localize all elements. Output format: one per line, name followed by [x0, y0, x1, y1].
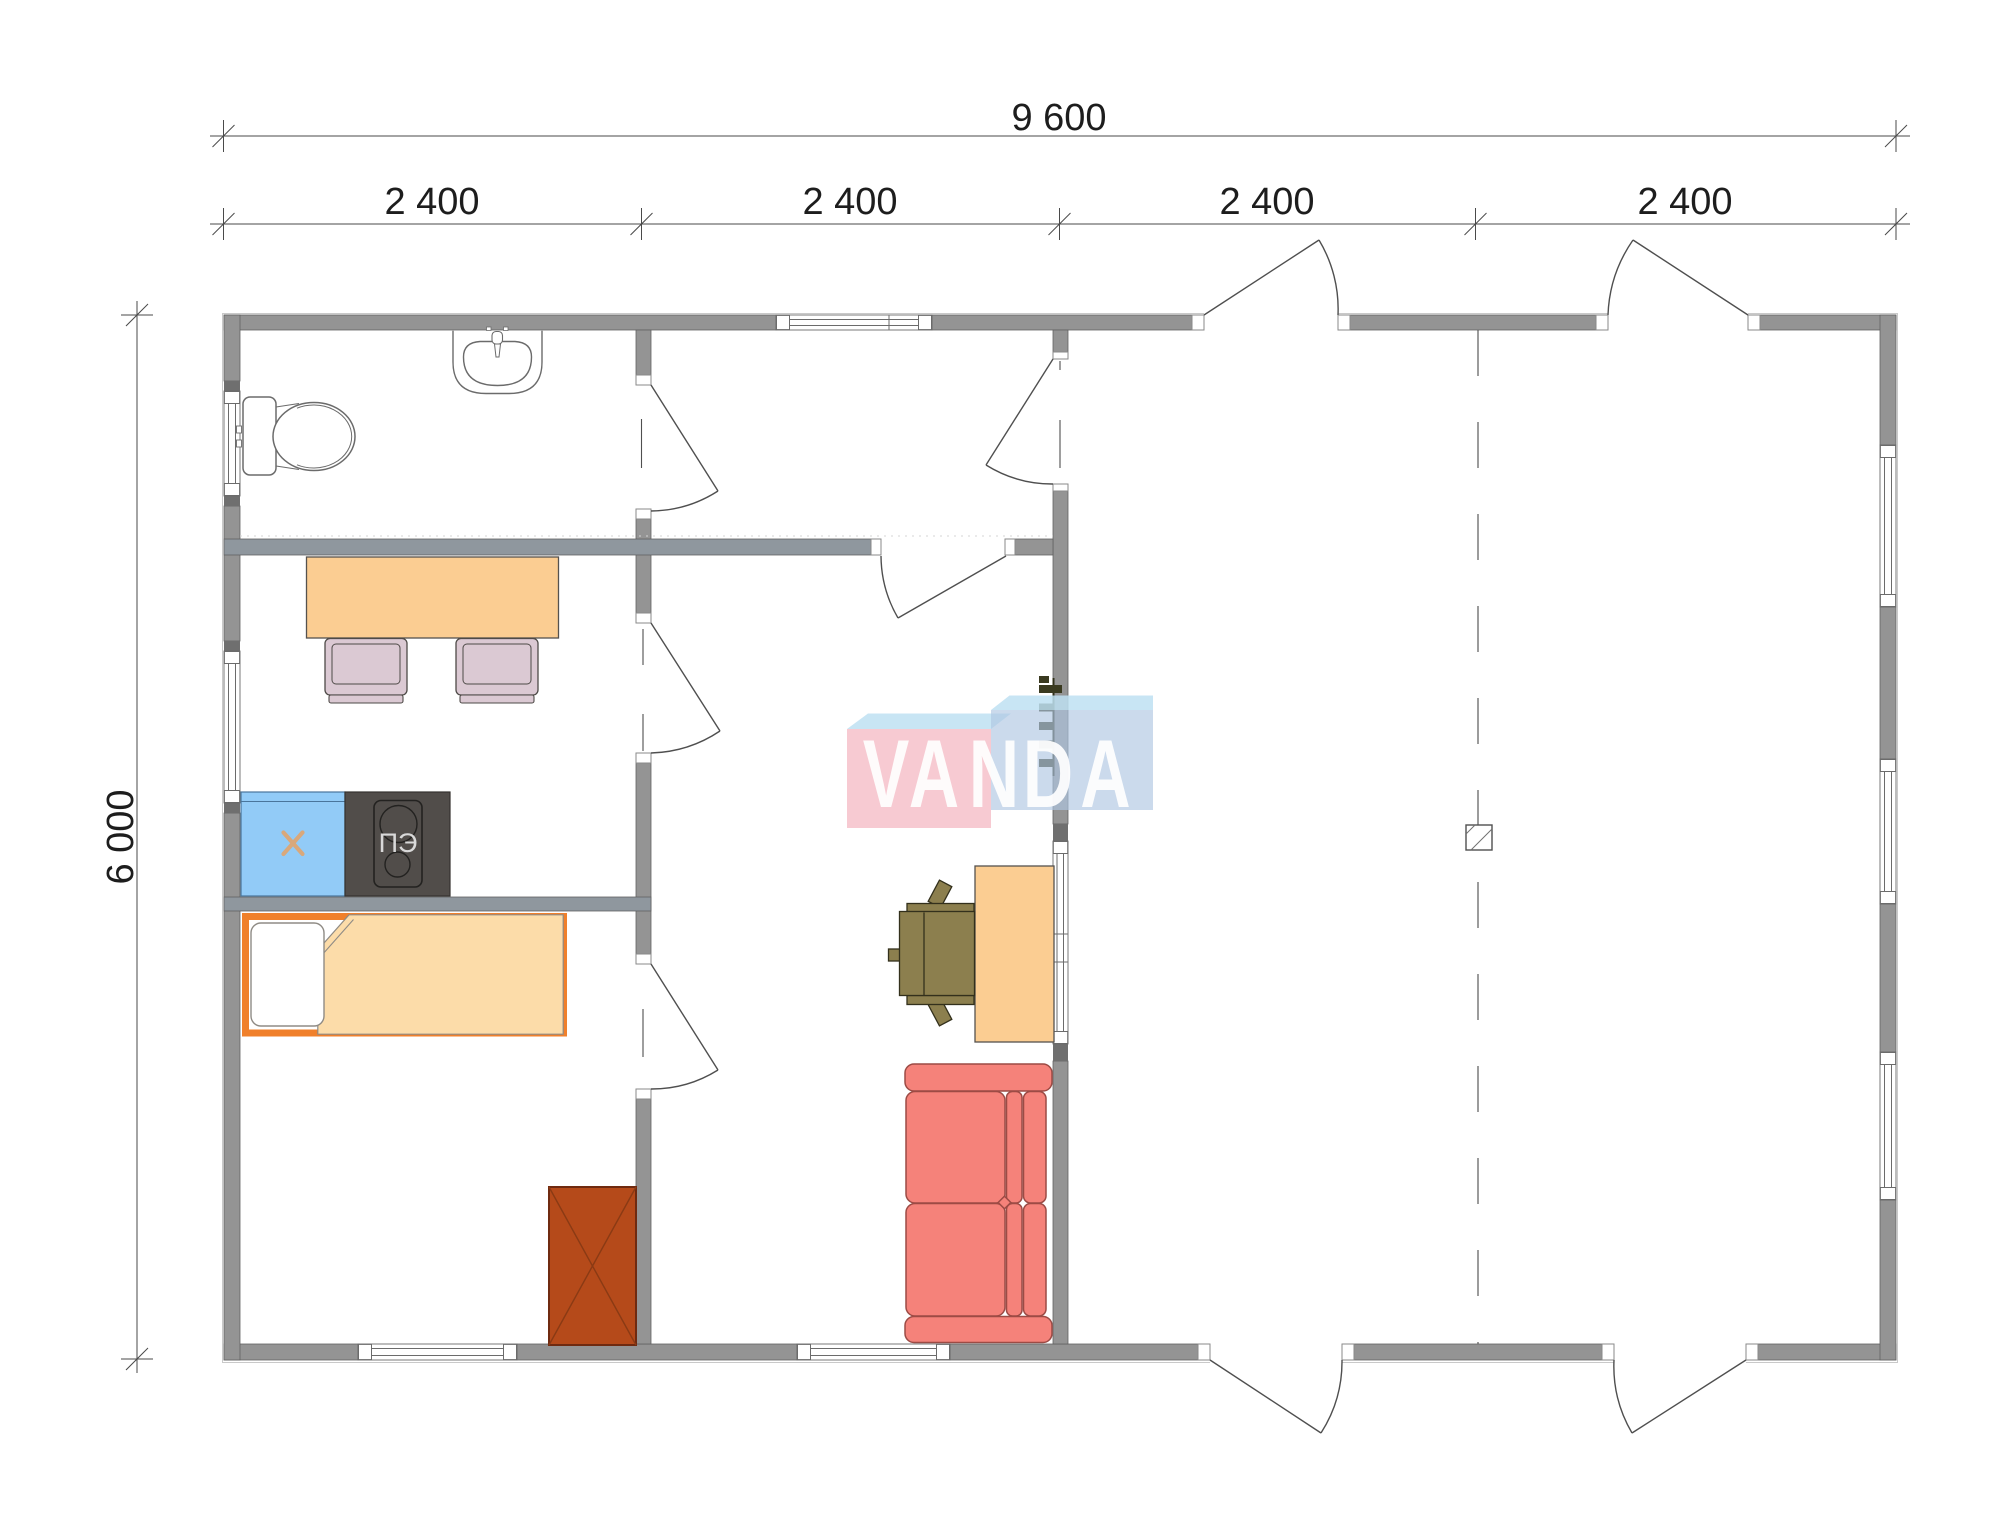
- svg-text:9 600: 9 600: [1011, 97, 1106, 139]
- svg-text:A: A: [1080, 719, 1130, 828]
- svg-text:A: A: [909, 719, 959, 828]
- svg-text:6 000: 6 000: [100, 789, 142, 884]
- svg-text:D: D: [1023, 719, 1073, 828]
- svg-text:2 400: 2 400: [802, 181, 897, 223]
- svg-text:ПЭ: ПЭ: [379, 828, 418, 858]
- svg-text:N: N: [969, 719, 1019, 828]
- svg-text:V: V: [863, 719, 910, 828]
- svg-text:2 400: 2 400: [384, 181, 479, 223]
- svg-text:2 400: 2 400: [1219, 181, 1314, 223]
- svg-text:2 400: 2 400: [1637, 181, 1732, 223]
